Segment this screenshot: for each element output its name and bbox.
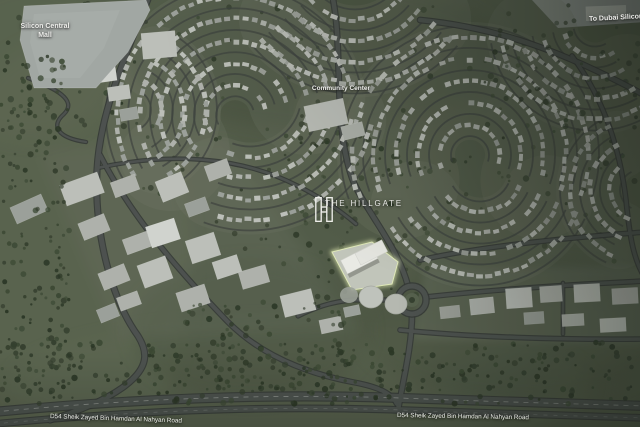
hillgate-h-monogram-icon [314,196,334,223]
community-center-label: Community Center [310,85,372,94]
hillgate-logo: THE HILLGATE [314,196,414,208]
mall-label: Silicon Central Mall [14,22,76,41]
map-canvas: Silicon Central Mall Community Center To… [0,0,640,427]
